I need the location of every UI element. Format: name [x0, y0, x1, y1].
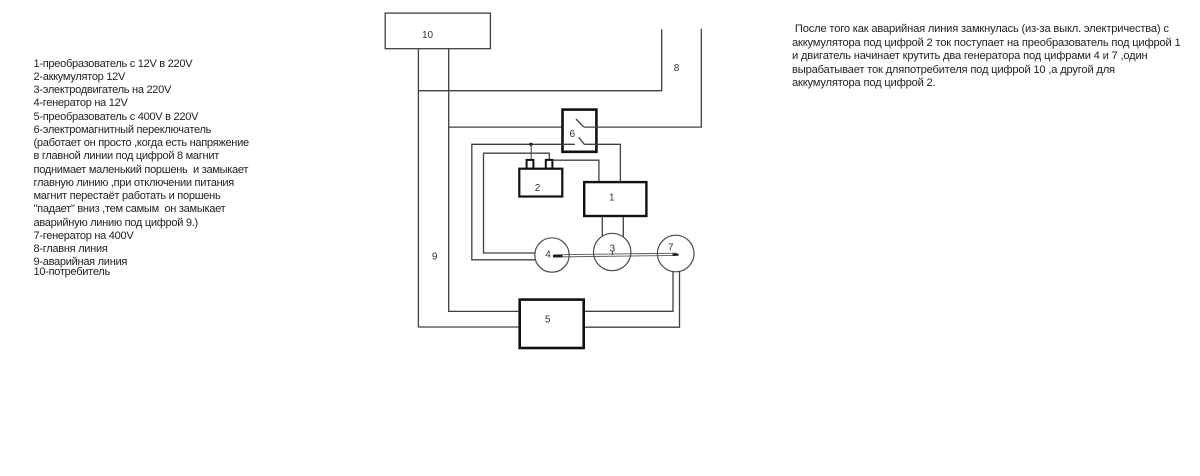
svg-text:7: 7	[668, 242, 674, 253]
svg-text:1: 1	[609, 192, 615, 203]
svg-text:4: 4	[545, 249, 551, 260]
svg-text:2: 2	[535, 183, 541, 194]
svg-text:5: 5	[545, 315, 551, 326]
svg-text:10: 10	[422, 30, 434, 41]
svg-text:8: 8	[674, 63, 680, 74]
svg-text:6: 6	[570, 129, 576, 140]
svg-text:9: 9	[432, 252, 438, 263]
